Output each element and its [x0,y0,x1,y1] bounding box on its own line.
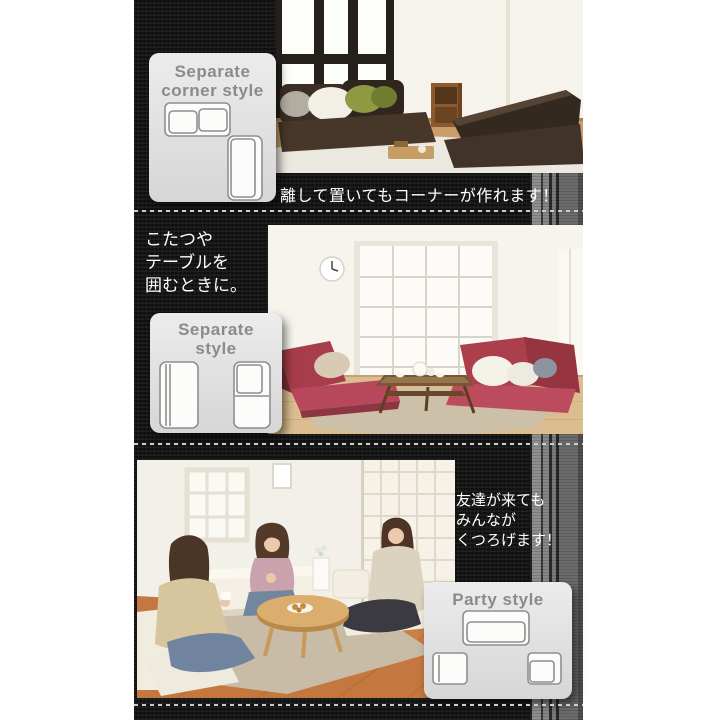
badge-title-line2: style [150,339,282,358]
sofa-party-layout-icon [424,609,572,691]
note-line: みんなが [456,511,561,531]
style-badge-separate: Separate style [150,313,282,433]
fabric-background: Separate corner style 離して置いてもコーナーが作れます！ … [134,0,583,720]
photo-corner-arrangement [276,0,583,173]
photo-party-arrangement [137,460,455,698]
style-badge-party: Party style [424,582,572,699]
corner-sofa-scene-image [276,0,583,173]
dashed-divider [134,210,583,212]
dashed-divider [134,704,583,706]
section1-caption: 離して置いてもコーナーが作れます！ [280,182,559,206]
note-line: 囲むときに。 [145,274,247,297]
badge-title: Separate style [150,313,282,358]
sofa-corner-layout-icon [149,100,276,206]
section3-note: 友達が来ても みんなが くつろげます！ [456,491,561,551]
promo-banner: Separate corner style 離して置いてもコーナーが作れます！ … [0,0,720,720]
badge-title-line1: Separate [149,62,276,81]
badge-title-line2: corner style [149,81,276,100]
photo-facing-arrangement [268,225,583,434]
section2-note: こたつや テーブルを 囲むときに。 [145,228,247,297]
sofa-separate-layout-icon [150,358,282,434]
note-line: 友達が来ても [456,491,561,511]
note-line: こたつや [145,228,247,251]
red-sofa-scene-image [268,225,583,434]
badge-title: Party style [424,582,572,609]
party-scene-image [137,460,455,698]
badge-title-line1: Separate [150,320,282,339]
style-badge-separate-corner: Separate corner style [149,53,276,202]
badge-title: Separate corner style [149,53,276,100]
dashed-divider [134,443,583,445]
note-line: くつろげます！ [456,531,561,551]
badge-title-line1: Party style [424,590,572,609]
note-line: テーブルを [145,251,247,274]
